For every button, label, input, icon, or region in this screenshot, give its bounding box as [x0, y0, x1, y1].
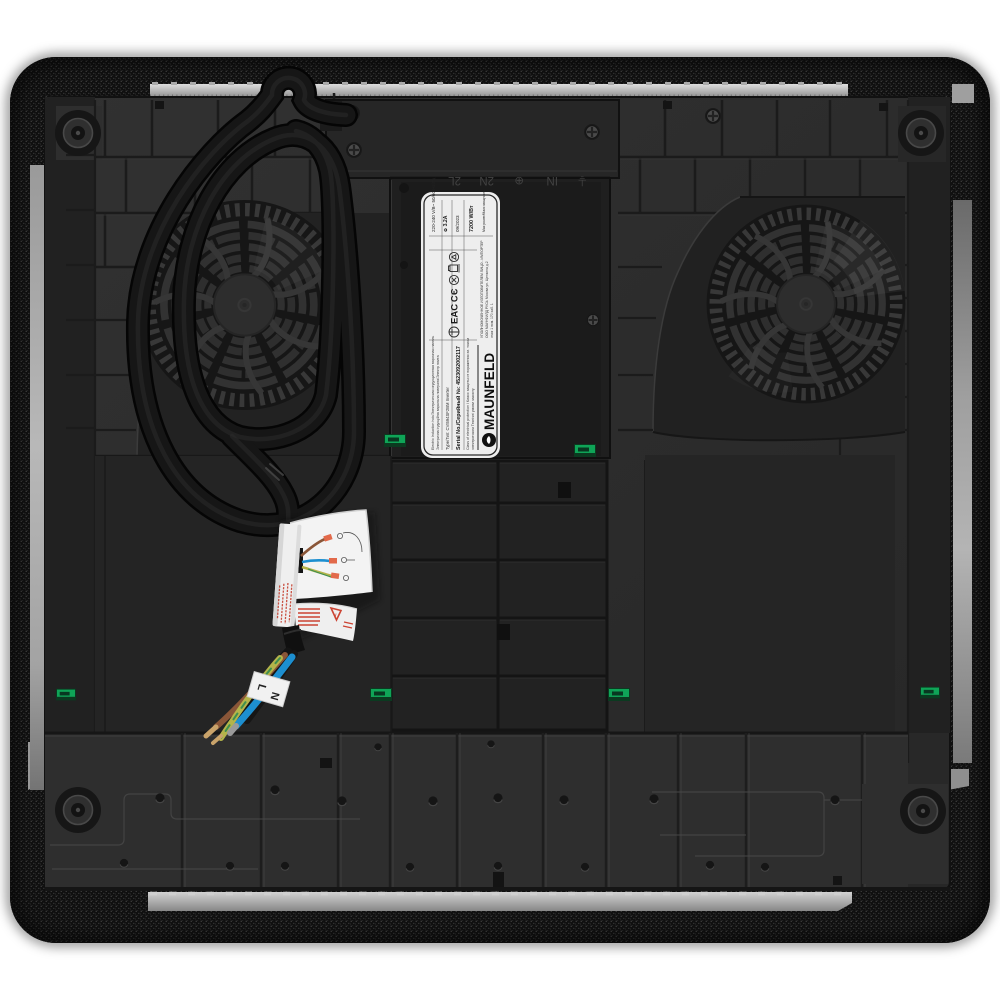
- svg-text:2N: 2N: [479, 174, 494, 186]
- svg-text:ООО МАУНФИЛД РУСЬ Москва ул. Щ: ООО МАУНФИЛД РУСЬ Москва ул. Щенкина д.2: [485, 261, 489, 338]
- svg-text:этаж 1 пом. 170 каб. 1: этаж 1 пом. 170 каб. 1: [490, 303, 494, 338]
- svg-text:09/2023: 09/2023: [455, 215, 460, 232]
- svg-text:MAUNFELD: MAUNFELD: [482, 353, 497, 430]
- svg-text:электротоком Технічні умови за: электротоком Технічні умови захисту: [471, 388, 475, 450]
- svg-text:Electric Induction hob/Электри: Electric Induction hob/Электрическая инд…: [431, 336, 435, 450]
- svg-text:CЄ: CЄ: [450, 288, 460, 302]
- svg-text:Электрична індукційна варильна: Электрична індукційна варильна поверхня/…: [436, 355, 440, 450]
- svg-text:220-240 V/В~ 50/60 Hz/Гц: 220-240 V/В~ 50/60 Hz/Гц: [431, 177, 436, 232]
- svg-text:⊕: ⊕: [514, 174, 524, 186]
- svg-text:7200 W/Вт: 7200 W/Вт: [469, 205, 475, 232]
- svg-text:⎉️ 3.2A: ⎉️ 3.2A: [443, 215, 449, 232]
- svg-text:2L: 2L: [448, 174, 461, 186]
- svg-text:Class of electrical protection: Class of electrical protection I Класс з…: [466, 338, 470, 450]
- svg-text:⏚: ⏚: [577, 174, 589, 187]
- svg-text:IN: IN: [547, 174, 559, 186]
- svg-text:EAC: EAC: [450, 304, 461, 324]
- svg-text:УПОЛНОМОЧЕННОЕ ИЗГОТОВИТЕЛЕМ Л: УПОЛНОМОЧЕННОЕ ИЗГОТОВИТЕЛЕМ ЛИЦО - ИМПО…: [480, 240, 484, 338]
- svg-text:Type/Тип: CVI594SF2BM Inverte: Type/Тип: CVI594SF2BM Inverter: [445, 387, 450, 450]
- svg-text:Max power/Макс мощность: Max power/Макс мощность: [482, 190, 486, 232]
- svg-text:Serial No./Серийный №: 4523092: Serial No./Серийный №: 4523092002117: [455, 346, 462, 450]
